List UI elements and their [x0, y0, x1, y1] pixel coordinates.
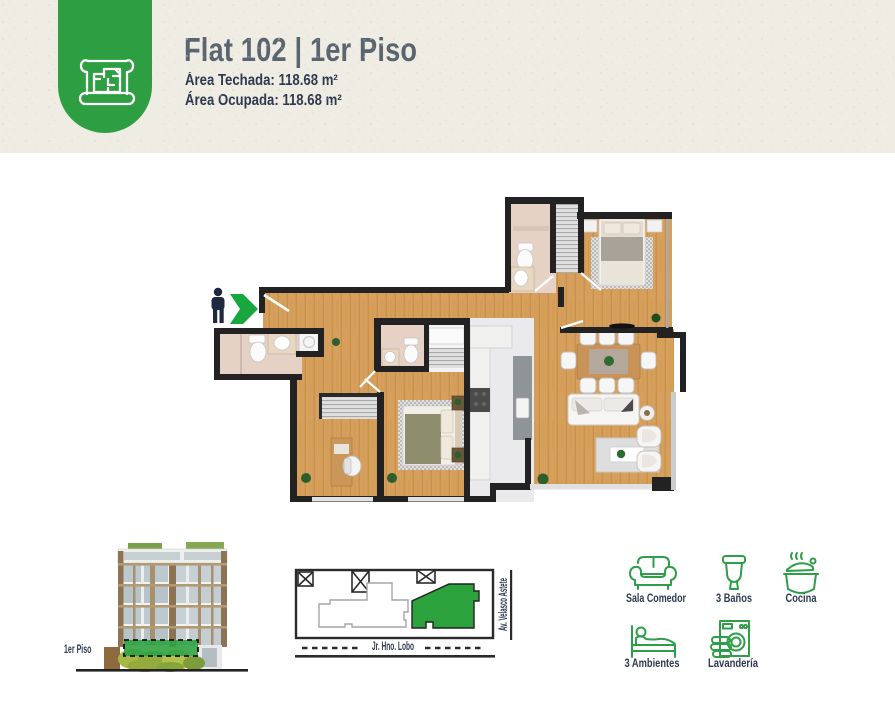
svg-text:3 Baños: 3 Baños — [716, 591, 752, 605]
svg-text:1er Piso: 1er Piso — [64, 642, 92, 656]
svg-text:3 Ambientes: 3 Ambientes — [625, 656, 680, 670]
svg-text:Lavandería: Lavandería — [708, 656, 758, 670]
svg-text:Av. Velasco Astete: Av. Velasco Astete — [496, 578, 510, 631]
svg-text:Cocina: Cocina — [786, 591, 817, 605]
svg-text:Jr. Hno. Lobo: Jr. Hno. Lobo — [372, 639, 414, 653]
svg-text:Sala Comedor: Sala Comedor — [626, 591, 686, 605]
